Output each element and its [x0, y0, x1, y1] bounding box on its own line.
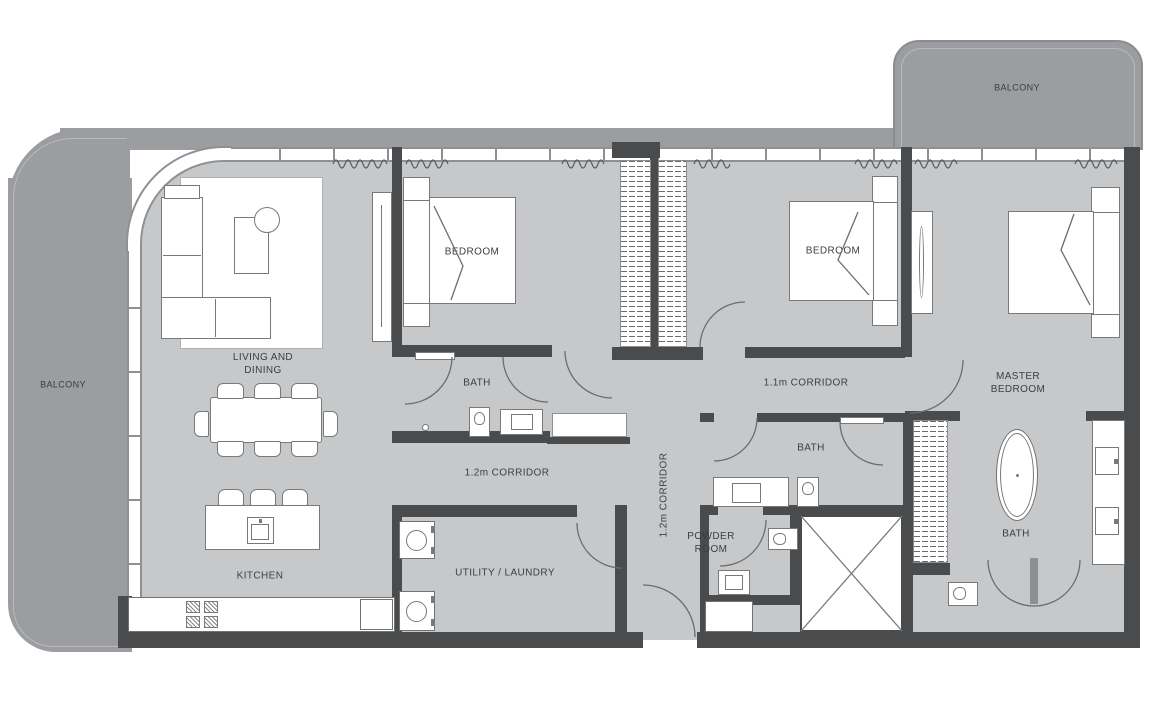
washer-icon	[399, 591, 435, 631]
corridor-label-12-v: 1.2m CORRIDOR	[658, 453, 671, 538]
balcony-top-right-railing	[901, 48, 1135, 148]
balcony-top-right	[893, 40, 1143, 150]
wardrobe-icon	[658, 160, 687, 347]
vanity-sink-icon	[1095, 447, 1119, 475]
shelf-niche	[552, 413, 627, 437]
room-label-bath-2: BATH	[797, 442, 825, 455]
room-label-balcony-top-right: BALCONY	[994, 82, 1040, 95]
wall	[118, 632, 643, 648]
wardrobe-icon	[913, 420, 948, 563]
dining-chair-icon	[194, 411, 209, 437]
wall	[547, 437, 630, 444]
kitchen-counter	[128, 597, 395, 632]
corridor-label-12-h: 1.2m CORRIDOR	[465, 467, 550, 480]
wall	[392, 505, 577, 517]
dining-chair-icon	[254, 441, 281, 457]
room-label-kitchen: KITCHEN	[237, 570, 284, 583]
floor-plan: BALCONY BALCONY LIVING AND DINING	[0, 0, 1166, 704]
room-label-bedroom-2: BEDROOM	[806, 245, 860, 258]
room-label-balcony-left: BALCONY	[40, 379, 86, 392]
toilet-icon	[948, 582, 978, 606]
nightstand-line	[404, 200, 429, 201]
wardrobe-icon	[620, 160, 651, 347]
nightstand-line	[1092, 212, 1119, 213]
dining-table-icon	[210, 397, 322, 443]
sofa-icon	[161, 297, 271, 339]
nightstand-line	[873, 300, 897, 301]
nightstand-line	[873, 202, 897, 203]
dining-chair-icon	[254, 383, 281, 399]
nightstand-line	[404, 303, 429, 304]
wall	[903, 413, 913, 632]
vanity-sink-icon	[500, 409, 543, 435]
vanity-sink-icon	[1095, 507, 1119, 535]
shower-bar-icon	[415, 352, 455, 360]
wall	[745, 347, 905, 358]
dining-chair-icon	[217, 441, 244, 457]
wall	[700, 413, 714, 422]
bed-headboard	[1091, 187, 1120, 338]
wall	[612, 347, 703, 360]
wall	[615, 505, 627, 635]
window-band-left	[127, 245, 142, 598]
wall	[1124, 147, 1140, 648]
washer-icon	[399, 521, 435, 559]
toilet-icon	[797, 477, 819, 507]
shower-bar-icon	[840, 417, 884, 424]
bar-stool-icon	[282, 489, 308, 506]
vanity-sink-icon	[713, 477, 789, 507]
bar-stool-icon	[218, 489, 244, 506]
tv-console-icon	[372, 192, 392, 342]
room-label-utility-laundry: UTILITY / LAUNDRY	[455, 567, 555, 580]
wall	[910, 563, 950, 575]
balcony-left	[8, 178, 132, 652]
balcony-left-railing	[13, 138, 127, 647]
sofa-cushion-line	[215, 299, 216, 337]
island-sink-icon	[247, 517, 274, 544]
storage-niche	[705, 601, 753, 632]
room-label-master-bath: BATH	[1002, 528, 1030, 541]
dining-chair-icon	[291, 383, 318, 399]
wall	[697, 632, 1140, 648]
side-table-icon	[254, 207, 280, 233]
bathtub-icon	[996, 429, 1038, 521]
nightstand-line	[1092, 314, 1119, 315]
dresser-icon	[911, 211, 933, 314]
room-label-bath-1: BATH	[463, 377, 491, 390]
room-label-powder-room: POWDER ROOM	[687, 530, 734, 556]
sofa-cushion-line	[163, 255, 201, 256]
room-label-master-bedroom: MASTER BEDROOM	[991, 370, 1045, 396]
corridor-label-11: 1.1m CORRIDOR	[764, 377, 849, 390]
bed-headboard	[872, 176, 898, 326]
floor-drain-icon	[422, 424, 429, 431]
wall	[612, 142, 660, 158]
stove-icon	[186, 601, 220, 629]
wall	[392, 147, 402, 357]
bed-icon	[1008, 211, 1094, 314]
shower-screen-wall	[1030, 558, 1038, 604]
toilet-icon	[768, 528, 798, 550]
counter-sink-icon	[360, 599, 393, 630]
sofa-armrest	[164, 185, 200, 199]
room-label-bedroom-1: BEDROOM	[445, 246, 499, 259]
bar-stool-icon	[250, 489, 276, 506]
toilet-icon	[469, 407, 490, 437]
vanity-counter	[1092, 420, 1125, 565]
dining-chair-icon	[323, 411, 338, 437]
service-shaft-icon	[800, 515, 903, 632]
wall	[650, 158, 658, 350]
room-label-living-dining: LIVING AND DINING	[233, 351, 293, 377]
vanity-sink-icon	[718, 570, 750, 595]
dining-chair-icon	[217, 383, 244, 399]
dining-chair-icon	[291, 441, 318, 457]
